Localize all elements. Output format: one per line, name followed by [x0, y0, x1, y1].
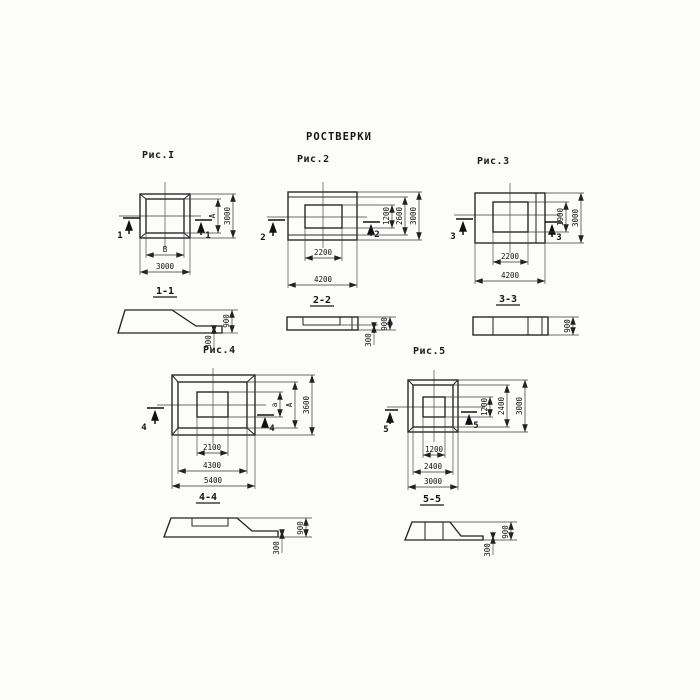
fig1-dim-inner-width: В — [163, 245, 168, 254]
fig5-plan-drawing: 5 5 1200 2400 3000 1200 2400 3000 5-5 — [385, 368, 580, 513]
section-1-1-drawing: 900 300 — [110, 302, 250, 362]
fig5-cut-left-number: 5 — [383, 425, 388, 435]
fig2-plan-drawing: 2 2 2200 4200 1200 2600 3000 2-2 — [255, 170, 435, 310]
fig4-dim-outer-height: 3600 — [302, 395, 311, 414]
section-1-1-edge: 300 — [204, 335, 213, 349]
fig3-caption: Рис.3 — [477, 156, 510, 167]
fig4-plan-drawing: 4 4 2100 4300 5400 а А 3600 4-4 — [130, 368, 360, 513]
fig4-dim-mid-width: 4300 — [203, 461, 222, 470]
sheet-title: РОСТВЕРКИ — [306, 131, 372, 143]
fig3-cut-right-number: 3 — [556, 233, 561, 243]
section-1-1-height: 900 — [222, 314, 231, 328]
section-2-2-height: 900 — [380, 317, 389, 331]
fig1-dim-outer-width: 3000 — [156, 262, 175, 271]
fig3-cut-left-number: 3 — [450, 232, 455, 242]
fig5-dim-mid-width: 2400 — [424, 462, 443, 471]
fig1-section-label: 1-1 — [156, 286, 174, 297]
drawing-canvas: РОСТВЕРКИ Рис.I Рис.2 Рис.3 Рис.4 Рис.5 … — [0, 0, 700, 700]
section-4-4-drawing: 900 300 — [140, 507, 340, 572]
fig4-section-label: 4-4 — [199, 492, 217, 503]
fig4-dim-outer-width: 5400 — [204, 476, 223, 485]
fig4-cut-left-number: 4 — [141, 423, 147, 433]
fig2-caption: Рис.2 — [297, 154, 330, 165]
fig3-dim-inner-width: 2200 — [501, 252, 520, 261]
fig5-dim-inner-width: 1200 — [425, 445, 444, 454]
fig5-section-label: 5-5 — [423, 494, 441, 505]
section-5-5-height: 900 — [501, 525, 510, 539]
fig2-dim-inner-height: 1200 — [382, 206, 391, 225]
section-5-5-edge: 300 — [483, 543, 492, 557]
fig3-plan-drawing: 3 3 2200 4200 1900 3000 3-3 — [440, 175, 600, 315]
fig1-dim-outer-height: 3000 — [223, 206, 232, 225]
section-2-2-edge: 300 — [364, 333, 373, 347]
fig2-cut-left-number: 2 — [260, 233, 265, 243]
fig3-dim-outer-width: 4200 — [501, 271, 520, 280]
fig4-cut-right-number: 4 — [269, 424, 275, 434]
fig1-cut-left-number: 1 — [117, 231, 122, 241]
fig1-caption: Рис.I — [142, 150, 175, 161]
fig4-dim-mid-height: А — [285, 402, 294, 407]
section-3-3-drawing: 900 — [455, 297, 615, 352]
fig5-dim-inner-height: 1200 — [480, 397, 489, 416]
fig1-plan-drawing: 1 1 В 3000 А 3000 1-1 — [95, 172, 250, 302]
fig1-cut-right-number: 1 — [205, 231, 210, 241]
fig2-dim-outer-width: 4200 — [314, 275, 333, 284]
section-5-5-drawing: 900 300 — [395, 507, 555, 572]
fig4-dim-inner-width: 2100 — [203, 443, 222, 452]
fig5-dim-mid-height: 2400 — [497, 396, 506, 415]
section-3-3-height: 900 — [563, 319, 572, 333]
fig3-dim-outer-height: 3000 — [571, 208, 580, 227]
fig2-dim-inner-width: 2200 — [314, 248, 333, 257]
fig1-dim-inner-height: А — [208, 213, 217, 218]
fig2-dim-outer-height: 3000 — [409, 206, 418, 225]
section-4-4-edge: 300 — [272, 541, 281, 555]
fig4-dim-inner-height: а — [270, 403, 279, 408]
fig5-cut-right-number: 5 — [473, 421, 478, 431]
fig3-dim-inner-height: 1900 — [556, 207, 565, 226]
fig2-dim-mid-height: 2600 — [395, 206, 404, 225]
fig5-dim-outer-width: 3000 — [424, 477, 443, 486]
fig5-dim-outer-height: 3000 — [515, 396, 524, 415]
section-2-2-drawing: 900 300 — [270, 297, 430, 357]
section-4-4-height: 900 — [296, 521, 305, 535]
